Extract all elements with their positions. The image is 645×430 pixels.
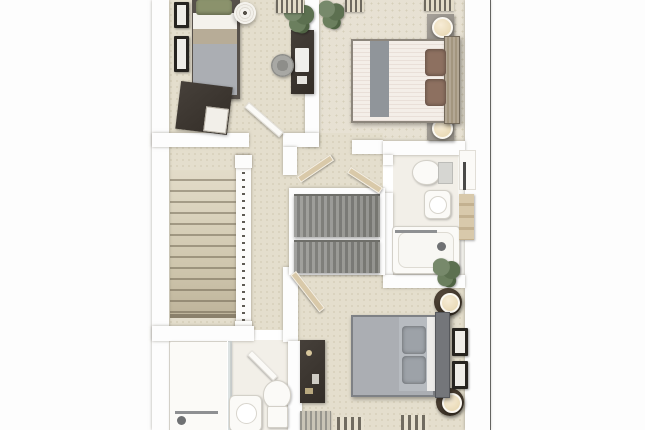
floor-plan-render [0,0,645,430]
pillow-grey-2 [402,356,426,384]
wall-stub-horizontal [283,133,319,147]
dressing-table-item-3 [305,388,313,394]
cupboard-unit-top [294,194,380,237]
lamp-br-top [440,293,460,313]
basin-bowl [429,196,447,214]
pillow-brown-2 [425,79,446,106]
bed-sheet-fold [193,13,237,30]
shower-screen-bar [395,230,437,233]
rug-br-1 [337,417,364,430]
wall-ensuite-top [152,326,254,341]
desk-chair [271,54,294,77]
shower-head-bath [437,242,446,251]
desk [291,30,314,94]
towel-stack [459,194,474,240]
radiator-bedroom-tr-1 [345,0,364,12]
pendant-light [234,2,256,24]
dressing-table [300,340,325,403]
radiator-bedroom-br [300,411,331,430]
basin-bathroom [424,190,451,219]
radiator-bedroom-tl [276,0,304,13]
toilet-ensuite-bowl [263,380,291,409]
balustrade [236,155,251,335]
wall-outer-left [152,0,169,430]
bathroom-wall-cabinet [459,150,476,190]
chest-of-drawers [175,81,232,135]
bed-headboard-master [444,36,460,124]
wall-stub-vertical [283,147,297,175]
pillow-green [196,0,232,15]
rug-br-2 [401,415,428,430]
radiator-bedroom-tr-2 [424,0,454,11]
wall-bedroom-tl-bottom [152,133,249,147]
toilet-cistern [438,162,453,184]
wall-frame-tl-2 [174,36,189,72]
shower-rail [175,411,218,414]
bed-headboard-grey [435,312,450,398]
bed-runner-grey [370,41,389,117]
shower-head [177,416,186,425]
wall-frame-br-1 [452,328,468,356]
open-drawer [203,106,229,134]
pillow-grey-1 [402,326,426,354]
toilet-bowl [412,160,440,185]
stair-bottom-edge [170,314,236,318]
wall-frame-br-2 [452,361,468,389]
dressing-table-item-2 [312,374,319,384]
wall-bathroom-left-jamb [383,155,393,165]
lamp-tr-top [432,17,453,38]
wall-frame-tl-1 [174,2,189,28]
dressing-table-item-1 [306,350,312,356]
newel-post-top [235,155,252,168]
basin-ensuite [229,395,262,430]
balustrade-spindles [242,165,245,325]
double-bed-master [351,36,458,122]
basin-ensuite-bowl [236,403,257,424]
wall-bathroom-top [383,141,465,155]
double-bed-grey [351,312,448,396]
towel-rail [463,162,466,190]
desk-keyboard [297,76,307,84]
plant-bedroom-tr [319,0,344,30]
wall-bedroom-tr-bottom [352,140,383,154]
cupboard-unit-bottom [294,240,380,273]
bed-blanket-band [193,29,237,45]
staircase [170,170,236,318]
pillow-brown-1 [425,49,446,76]
plant-bedroom-br [433,258,460,288]
desk-monitor [295,48,309,72]
toilet-ensuite-base [267,406,288,428]
